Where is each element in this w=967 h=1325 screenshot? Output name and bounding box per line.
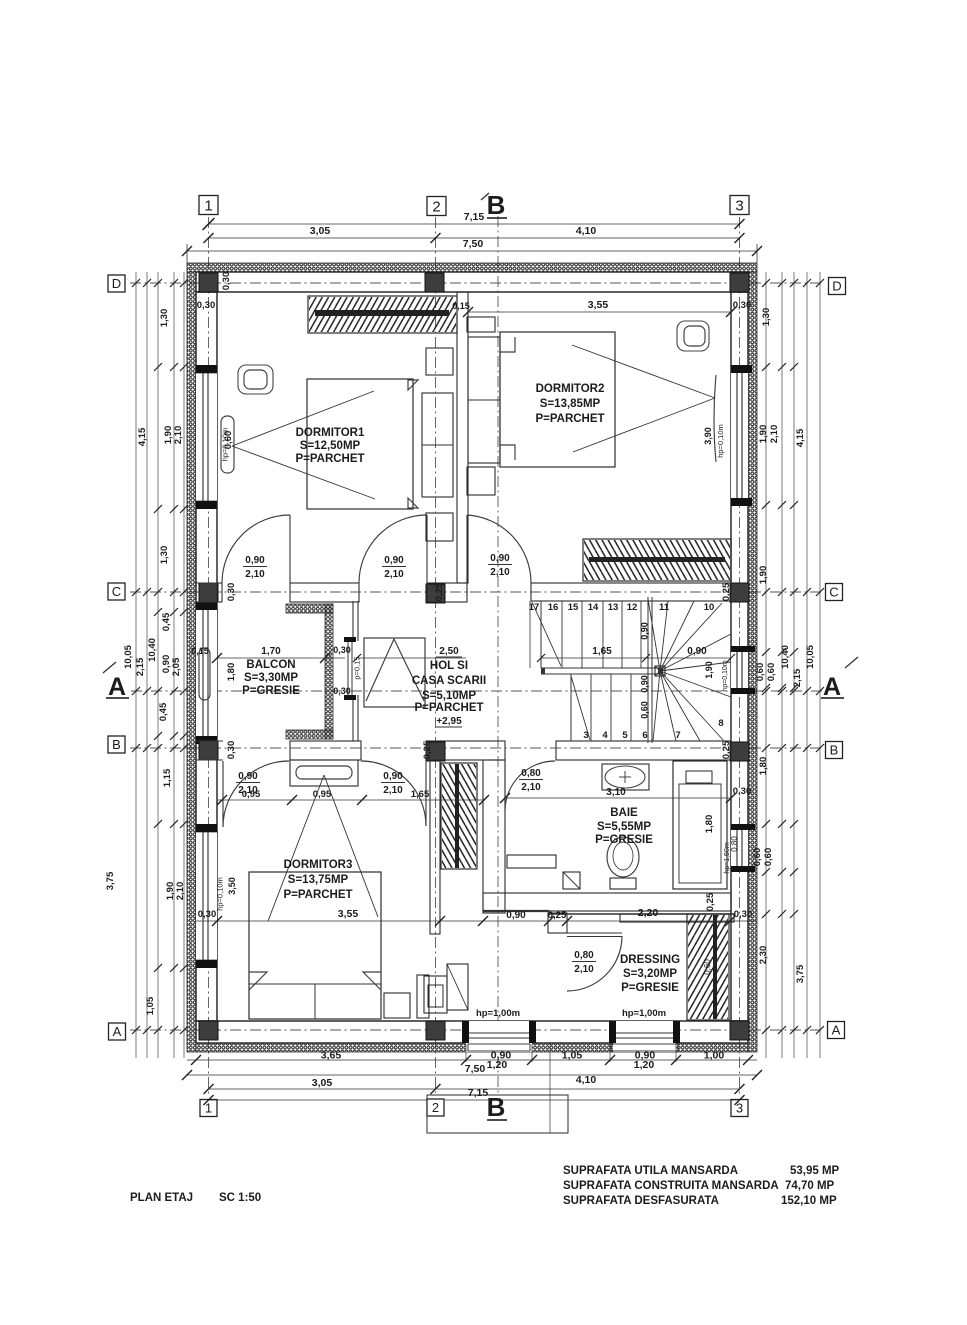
svg-text:0,25: 0,25: [721, 740, 732, 759]
svg-text:0,60: 0,60: [766, 663, 777, 682]
svg-text:10,05: 10,05: [805, 644, 816, 668]
svg-text:1,05: 1,05: [562, 1050, 583, 1062]
svg-text:BALCON: BALCON: [246, 659, 295, 671]
svg-text:P=PARCHET: P=PARCHET: [414, 702, 483, 714]
svg-text:2: 2: [432, 198, 440, 215]
svg-text:hp=0,10m: hp=0,10m: [716, 424, 725, 458]
svg-text:hp=0,10m: hp=0,10m: [216, 877, 225, 911]
svg-text:B: B: [487, 190, 506, 220]
svg-text:1,20: 1,20: [634, 1059, 655, 1071]
svg-text:A: A: [823, 673, 841, 701]
svg-text:10,40: 10,40: [780, 645, 791, 669]
svg-text:0,45: 0,45: [161, 612, 172, 631]
svg-text:2,10: 2,10: [173, 426, 184, 445]
svg-text:3: 3: [736, 1101, 743, 1116]
svg-text:0,90: 0,90: [506, 910, 526, 921]
svg-text:0,30: 0,30: [198, 909, 217, 920]
svg-text:1,80: 1,80: [704, 815, 715, 834]
svg-text:10,40: 10,40: [147, 638, 158, 662]
svg-text:hp=1,00m: hp=1,00m: [622, 1008, 666, 1019]
svg-text:3: 3: [735, 197, 743, 214]
svg-text:2,50: 2,50: [439, 646, 459, 657]
svg-text:A: A: [832, 1023, 841, 1038]
svg-text:4,15: 4,15: [137, 427, 148, 446]
svg-text:2,10: 2,10: [175, 882, 186, 901]
svg-text:4,10: 4,10: [576, 1074, 597, 1086]
svg-text:0,80: 0,80: [730, 836, 739, 852]
svg-text:3,75: 3,75: [795, 964, 806, 983]
svg-text:1,30: 1,30: [159, 546, 170, 565]
svg-text:0,60: 0,60: [640, 701, 650, 719]
svg-text:DORMITOR2: DORMITOR2: [536, 383, 605, 395]
svg-text:0,60: 0,60: [763, 848, 774, 867]
svg-text:P=GRESIE: P=GRESIE: [595, 834, 653, 846]
svg-text:S=3,20MP: S=3,20MP: [623, 968, 677, 980]
svg-text:3: 3: [583, 730, 588, 741]
svg-text:12: 12: [627, 602, 638, 613]
svg-text:P=GRESIE: P=GRESIE: [242, 685, 300, 697]
svg-text:0,60: 0,60: [223, 431, 234, 450]
svg-text:7,15: 7,15: [464, 211, 485, 223]
svg-text:0,30: 0,30: [734, 909, 753, 920]
svg-text:PLAN ETAJ: PLAN ETAJ: [130, 1192, 193, 1204]
svg-text:3,05: 3,05: [310, 225, 331, 237]
svg-text:A: A: [113, 1024, 122, 1039]
svg-text:0,25: 0,25: [434, 582, 445, 601]
svg-text:0,30: 0,30: [333, 686, 351, 696]
svg-text:SUPRAFATA UTILA MANSARDA: SUPRAFATA UTILA MANSARDA: [563, 1165, 738, 1177]
svg-text:3,75: 3,75: [105, 871, 116, 890]
svg-text:1,30: 1,30: [761, 308, 772, 327]
svg-text:CASA SCARII: CASA SCARII: [412, 675, 486, 687]
svg-text:0,95: 0,95: [313, 789, 332, 800]
svg-text:2,10: 2,10: [574, 964, 594, 975]
svg-text:1,05: 1,05: [145, 996, 156, 1015]
svg-text:0,90: 0,90: [640, 622, 650, 640]
svg-text:1,15: 1,15: [162, 768, 173, 787]
svg-text:17: 17: [529, 602, 540, 613]
svg-text:D: D: [112, 276, 121, 291]
svg-text:P=PARCHET: P=PARCHET: [535, 413, 604, 425]
svg-text:1,80: 1,80: [758, 757, 769, 776]
svg-text:1,20: 1,20: [487, 1059, 508, 1071]
svg-text:6: 6: [642, 730, 647, 741]
svg-text:HOL SI: HOL SI: [430, 660, 468, 672]
svg-text:DRESSING: DRESSING: [620, 954, 680, 966]
svg-text:0,15: 0,15: [191, 646, 209, 656]
svg-text:p=0,15: p=0,15: [353, 656, 362, 679]
svg-text:7: 7: [675, 730, 680, 741]
svg-text:3,55: 3,55: [338, 908, 359, 920]
svg-text:4,15: 4,15: [795, 428, 806, 447]
svg-text:2,15: 2,15: [792, 668, 803, 687]
svg-text:0,90: 0,90: [640, 675, 650, 693]
svg-text:3,05: 3,05: [312, 1077, 333, 1089]
svg-text:7,50: 7,50: [465, 1063, 486, 1075]
svg-text:0,60: 0,60: [752, 848, 763, 867]
svg-text:0,80: 0,80: [521, 768, 541, 779]
svg-text:2,30: 2,30: [758, 946, 769, 965]
svg-text:1,90: 1,90: [704, 661, 714, 679]
svg-text:P=GRESIE: P=GRESIE: [621, 982, 679, 994]
svg-text:74,70 MP: 74,70 MP: [785, 1180, 835, 1192]
svg-text:D: D: [832, 279, 841, 294]
svg-text:3,50: 3,50: [227, 877, 237, 895]
svg-text:S=13,75MP: S=13,75MP: [288, 874, 349, 886]
svg-text:2,20: 2,20: [638, 907, 659, 919]
svg-text:0,30: 0,30: [226, 741, 237, 760]
svg-text:0,30: 0,30: [226, 583, 237, 602]
svg-text:8: 8: [718, 718, 723, 729]
svg-text:0,30: 0,30: [733, 300, 752, 311]
svg-text:0,25: 0,25: [705, 892, 716, 911]
svg-text:A: A: [108, 673, 126, 701]
svg-text:P=PARCHET: P=PARCHET: [295, 453, 364, 465]
svg-text:0,45: 0,45: [158, 702, 169, 721]
svg-text:2,15: 2,15: [135, 657, 146, 676]
svg-text:53,95 MP: 53,95 MP: [790, 1165, 840, 1177]
svg-text:0,90: 0,90: [238, 771, 258, 782]
svg-text:0,30: 0,30: [333, 645, 351, 655]
svg-text:1: 1: [205, 1101, 212, 1116]
svg-text:0,30: 0,30: [197, 300, 216, 311]
svg-text:DORMITOR3: DORMITOR3: [284, 859, 353, 871]
svg-text:0,80: 0,80: [574, 950, 594, 961]
svg-text:0,95: 0,95: [242, 789, 261, 800]
svg-text:2,10: 2,10: [769, 425, 780, 444]
svg-text:0,60: 0,60: [755, 663, 766, 682]
svg-text:0,60: 0,60: [703, 959, 712, 975]
svg-text:3,65: 3,65: [321, 1050, 342, 1062]
svg-text:14: 14: [588, 602, 599, 613]
svg-text:4: 4: [602, 730, 608, 741]
svg-text:hp=1,00m: hp=1,00m: [476, 1008, 520, 1019]
svg-text:C: C: [112, 584, 121, 599]
svg-text:3,10: 3,10: [606, 787, 626, 798]
svg-text:10,05: 10,05: [123, 644, 134, 668]
svg-text:S=5,55MP: S=5,55MP: [597, 821, 651, 833]
svg-text:7,15: 7,15: [468, 1087, 489, 1099]
svg-text:+2,95: +2,95: [436, 716, 462, 727]
svg-text:0,90: 0,90: [490, 553, 510, 564]
svg-text:0,15: 0,15: [452, 301, 470, 311]
svg-text:BAIE: BAIE: [610, 807, 638, 819]
svg-text:15: 15: [568, 602, 579, 613]
svg-text:B: B: [487, 1092, 506, 1122]
svg-text:152,10 MP: 152,10 MP: [781, 1195, 837, 1207]
svg-text:SUPRAFATA DESFASURATA: SUPRAFATA DESFASURATA: [563, 1195, 719, 1207]
svg-text:5: 5: [622, 730, 628, 741]
svg-text:1,00: 1,00: [704, 1050, 725, 1062]
svg-text:0,25: 0,25: [721, 582, 732, 601]
svg-text:1,70: 1,70: [261, 646, 281, 657]
svg-text:0,25: 0,25: [422, 740, 433, 759]
svg-text:0,90: 0,90: [687, 646, 707, 657]
svg-text:0,30: 0,30: [221, 272, 232, 291]
svg-text:SUPRAFATA CONSTRUITA MANSARDA: SUPRAFATA CONSTRUITA MANSARDA: [563, 1180, 779, 1192]
svg-text:0,90: 0,90: [384, 555, 404, 566]
svg-text:2,05: 2,05: [171, 657, 182, 676]
svg-text:1,65: 1,65: [411, 789, 430, 800]
svg-text:B: B: [112, 737, 121, 752]
svg-text:B: B: [830, 743, 839, 758]
svg-text:11: 11: [659, 602, 670, 613]
svg-text:2,10: 2,10: [490, 567, 510, 578]
svg-text:1,30: 1,30: [159, 309, 170, 328]
svg-text:0,90: 0,90: [383, 771, 403, 782]
svg-text:1: 1: [204, 197, 212, 214]
svg-text:1,90: 1,90: [758, 566, 769, 585]
svg-text:2,10: 2,10: [245, 569, 265, 580]
svg-text:2,10: 2,10: [521, 782, 541, 793]
svg-text:S=13,85MP: S=13,85MP: [540, 398, 601, 410]
svg-text:0,90: 0,90: [245, 555, 265, 566]
svg-text:S=3,30MP: S=3,30MP: [244, 672, 298, 684]
svg-text:2,10: 2,10: [383, 785, 403, 796]
svg-text:3,90: 3,90: [703, 427, 713, 445]
svg-text:13: 13: [608, 602, 619, 613]
svg-text:10: 10: [704, 602, 715, 613]
svg-text:0,30: 0,30: [733, 786, 752, 797]
svg-text:hp=0,10m: hp=0,10m: [722, 660, 729, 691]
svg-text:0,25: 0,25: [548, 910, 567, 921]
svg-text:1,90: 1,90: [758, 425, 769, 444]
svg-text:C: C: [829, 585, 838, 600]
svg-text:DORMITOR1: DORMITOR1: [296, 427, 365, 439]
svg-text:SC 1:50: SC 1:50: [219, 1192, 261, 1204]
svg-text:7,50: 7,50: [463, 238, 484, 250]
svg-text:2: 2: [432, 1100, 439, 1115]
svg-text:4,10: 4,10: [576, 225, 597, 237]
svg-text:2,10: 2,10: [384, 569, 404, 580]
svg-text:16: 16: [548, 602, 559, 613]
svg-text:S=5,10MP: S=5,10MP: [422, 690, 476, 702]
svg-text:S=12,50MP: S=12,50MP: [300, 440, 361, 452]
svg-text:P=PARCHET: P=PARCHET: [283, 889, 352, 901]
svg-text:3,55: 3,55: [588, 299, 609, 311]
svg-text:1,65: 1,65: [592, 646, 612, 657]
svg-text:1,80: 1,80: [226, 663, 237, 682]
